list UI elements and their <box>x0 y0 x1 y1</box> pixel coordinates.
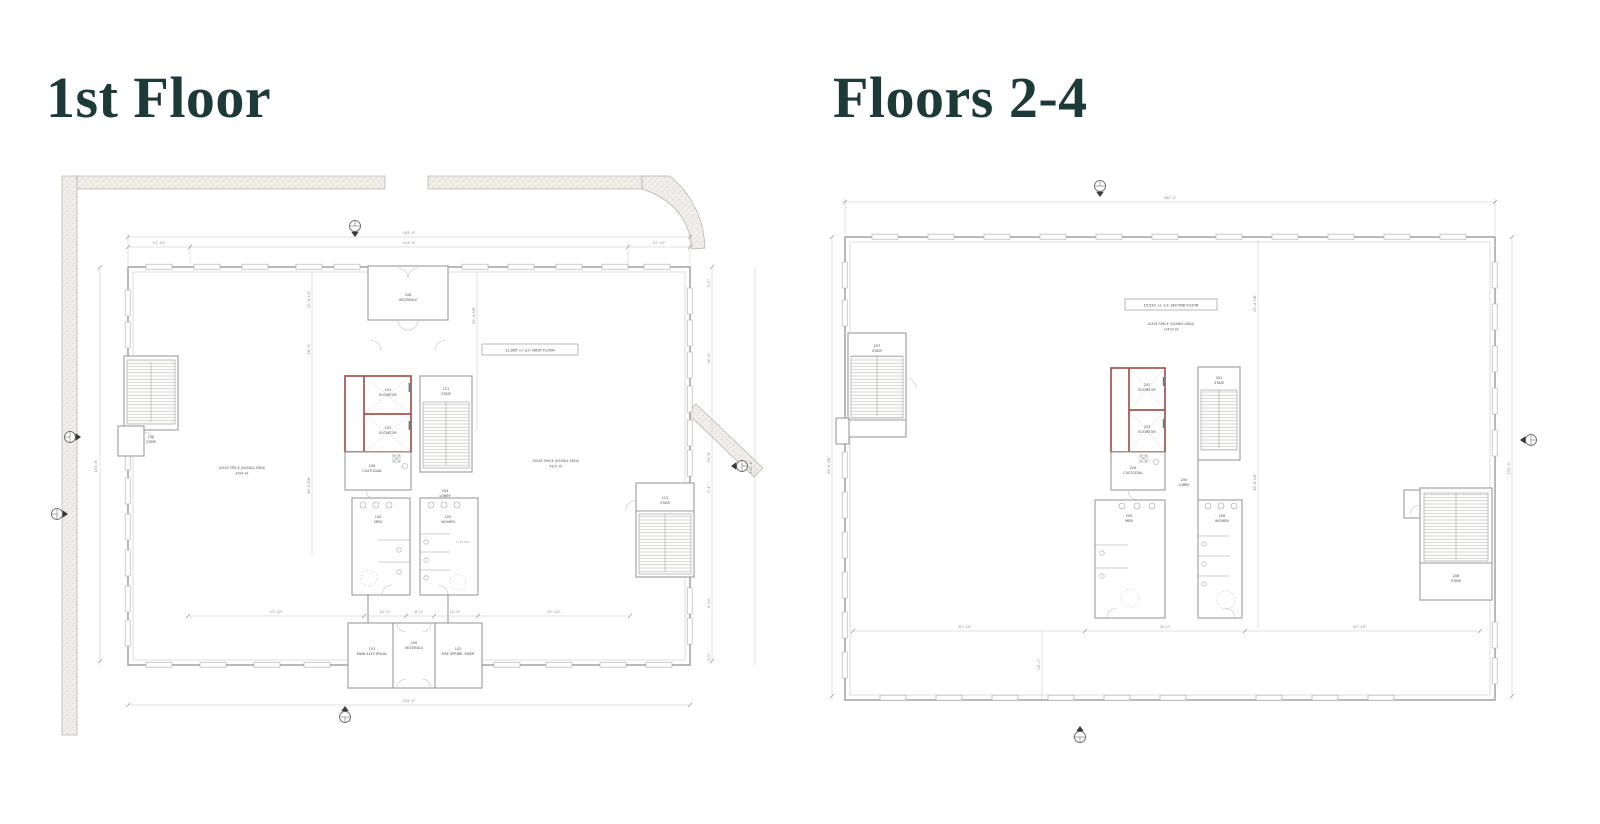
room-207-number: 207 <box>874 344 880 348</box>
room-102-elevator-number: 102 <box>385 388 391 392</box>
dim-bottom-3: 67'-10" <box>1353 625 1366 629</box>
room-200-number: 200 <box>1181 478 1187 482</box>
room-200-name: LOBBY <box>1179 483 1191 487</box>
dim-right-1: 3'-0" <box>707 278 711 287</box>
section-marker-icon <box>65 432 82 443</box>
room-105-number: 105 <box>445 515 451 519</box>
area-box-second-floor: 15,533 +/- S.F. SECOND FLOOR <box>1144 304 1199 308</box>
dim-int-2: 14'-6" <box>307 343 311 354</box>
room-104-name: MEN <box>374 520 382 524</box>
dim-far-right: 105'-8" <box>749 460 753 473</box>
dim-bottom-1: 57'-10" <box>269 610 282 614</box>
room-101-name: MAIN ELECTRICAL <box>357 652 388 656</box>
room-lobby-name: LOBBY <box>440 494 452 498</box>
dim-top-right: 17'-10" <box>652 241 665 245</box>
dim-top-center: 114'-4" <box>402 241 415 245</box>
room-202-number: 202 <box>1144 383 1150 387</box>
room-103-elevator-name: ELEVATOR <box>379 431 397 435</box>
elevator-core: 102 ELEVATOR 103 ELEVATOR <box>345 376 411 452</box>
room-112-name: STAIR <box>660 501 670 505</box>
room-208-number: 208 <box>1453 574 1459 578</box>
room-208-name: STAIR <box>1451 579 1461 583</box>
elevator-core: 202 ELEVATOR 203 ELEVATOR <box>1111 368 1165 452</box>
dim-right-2: 58'-8 3/8" <box>1253 473 1257 491</box>
lease-line1: LEASE SPACE (USABLE AREA) <box>1148 322 1195 326</box>
room-201-number: 201 <box>1216 376 1222 380</box>
dim-right-2: 40'-4" <box>707 352 711 363</box>
section-marker-icon <box>1520 435 1537 446</box>
dim-women-stall: 7'-11 3/4" <box>456 540 471 544</box>
area-box-first-floor: 11,065 +/- S.F. FIRST FLOOR <box>505 349 555 353</box>
dim-bottom-1: 67'-10" <box>958 625 971 629</box>
room-106-name: CUSTODIAL <box>362 469 382 473</box>
lease-right-line1: LEASE SPACE (USABLE AREA) <box>533 459 580 463</box>
room-203-number: 203 <box>1144 425 1150 429</box>
first-floor-plan-drawing: 163'-0" 17'-10" 114'-4" 17'-10" 103'-8" … <box>30 165 770 765</box>
dim-right-6: 3'-0" <box>707 652 711 661</box>
room-204-number: 204 <box>1130 466 1136 470</box>
dim-right-5: 4'-10" <box>707 597 711 608</box>
room-121-number: 121 <box>443 387 449 391</box>
dim-int-1: 12'-4 1/2" <box>307 290 311 308</box>
room-103-elevator-number: 103 <box>385 426 391 430</box>
dim-int-4: 29'-4 3/8" <box>472 306 476 324</box>
room-112-number: 112 <box>662 496 668 500</box>
room-110-number: 110 <box>148 435 154 439</box>
room-100-number: 100 <box>411 641 417 645</box>
dim-left-overall: 103'-8" <box>94 459 98 472</box>
lease-left-line1: LEASE SPACE (USABLE AREA) <box>219 466 266 470</box>
section-marker-icon <box>1095 181 1106 198</box>
dim-left-2: 22'-7" <box>1037 658 1041 669</box>
restroom-men-205: 205 MEN <box>1095 500 1165 618</box>
stair-112: 112 STAIR <box>626 483 694 577</box>
room-206-name: WOMEN <box>1215 519 1229 523</box>
room-105-name: WOMEN <box>441 520 455 524</box>
room-205-number: 205 <box>1126 514 1132 518</box>
dim-bottom-5: 57'-10" <box>547 610 560 614</box>
vestibule-108: 108 VESTIBULE <box>368 266 448 330</box>
room-207-name: STAIR <box>872 349 882 353</box>
room-205-name: MEN <box>1125 519 1133 523</box>
dim-bottom-overall: 103'-0" <box>402 699 415 703</box>
section-marker-icon <box>350 221 361 238</box>
room-201-name: STAIR <box>1214 381 1224 385</box>
section-marker-icon <box>1075 726 1086 743</box>
restroom-women-206: 206 WOMEN <box>1198 500 1242 618</box>
room-102-fire-number: 102 <box>455 647 461 651</box>
dim-top: 182'-0" <box>1163 196 1176 200</box>
room-108-number: 108 <box>405 293 411 297</box>
dim-bottom-3: 8'-0" <box>415 610 424 614</box>
restroom-men-104: 104 MEN <box>352 498 410 595</box>
section-marker-icon <box>340 706 351 723</box>
room-108-name: VESTIBULE <box>399 298 418 302</box>
dim-right-1: 29'-4 3/8" <box>1253 294 1257 312</box>
stair-207: 207 STAIR <box>836 333 916 444</box>
restroom-women-105: 105 WOMEN 7'-11 3/4" <box>420 498 478 595</box>
dim-top-overall: 163'-0" <box>402 231 415 235</box>
stair-201: 201 STAIR <box>1198 367 1240 460</box>
dim-right-4: 7'-4" <box>707 484 711 493</box>
dim-far-right: 110'-0" <box>1507 461 1511 474</box>
dim-bottom-4: 12'-0" <box>450 610 461 614</box>
dim-top-left: 17'-10" <box>152 241 165 245</box>
room-102-elevator-name: ELEVATOR <box>379 393 397 397</box>
dim-right-3: 16'-8" <box>707 451 711 462</box>
room-204-name: CUSTODIAL <box>1123 471 1143 475</box>
dim-left-1: 58'-8 3/8" <box>827 456 831 474</box>
page-title-first-floor: 1st Floor <box>46 64 271 131</box>
room-101-number: 101 <box>369 647 375 651</box>
room-203-name: ELEVATOR <box>1138 430 1156 434</box>
room-102-fire-name: FIRE SPRINK. RISER <box>441 652 475 656</box>
stair-121: 121 STAIR <box>420 376 472 472</box>
floors-2-4-plan-drawing: 182'-0" 58'-8 3/8" 110'-0" 207 STAIR 202… <box>820 165 1570 770</box>
room-206-number: 206 <box>1219 514 1225 518</box>
room-100-name: VESTIBULE <box>405 646 424 650</box>
lease-right-line2: 6101 SF <box>550 465 563 469</box>
room-104-number: 104 <box>375 515 381 519</box>
room-202-name: ELEVATOR <box>1138 388 1156 392</box>
page-title-floors-2-4: Floors 2-4 <box>833 64 1088 131</box>
room-110-name: STAIR <box>146 440 156 444</box>
section-marker-icon <box>731 461 748 472</box>
dim-bottom-2: 32'-0" <box>1160 625 1171 629</box>
room-106-number: 106 <box>369 464 375 468</box>
room-lobby-number: 103 <box>442 489 448 493</box>
dim-bottom-2: 12'-0" <box>380 610 391 614</box>
lease-left-line2: 4094 SF <box>236 472 249 476</box>
lease-line2: 13429 SF <box>1163 328 1178 332</box>
room-121-name: STAIR <box>441 392 451 396</box>
dim-int-3: 98'-0 5/8" <box>307 476 311 494</box>
